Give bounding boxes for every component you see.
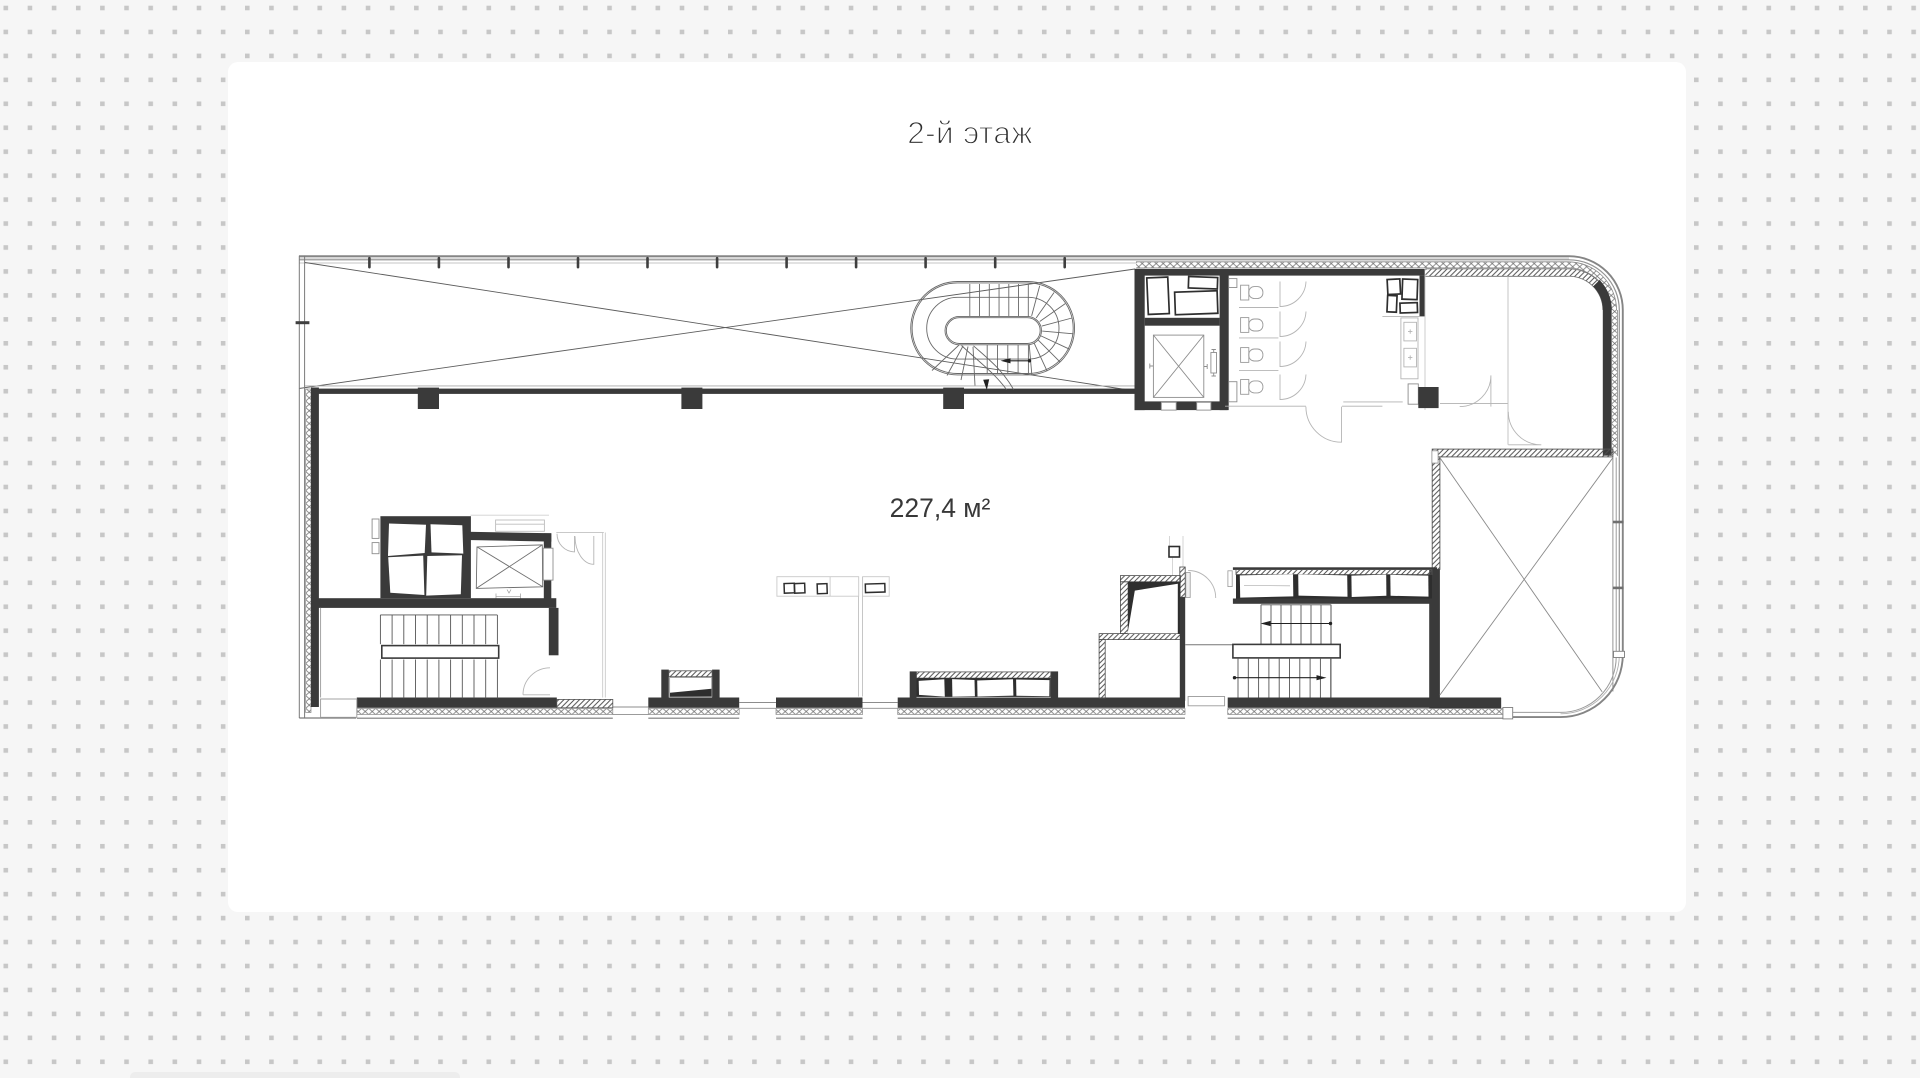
svg-text:2-й этаж: 2-й этаж [907, 115, 1033, 151]
svg-text:227,4 м²: 227,4 м² [890, 493, 991, 523]
